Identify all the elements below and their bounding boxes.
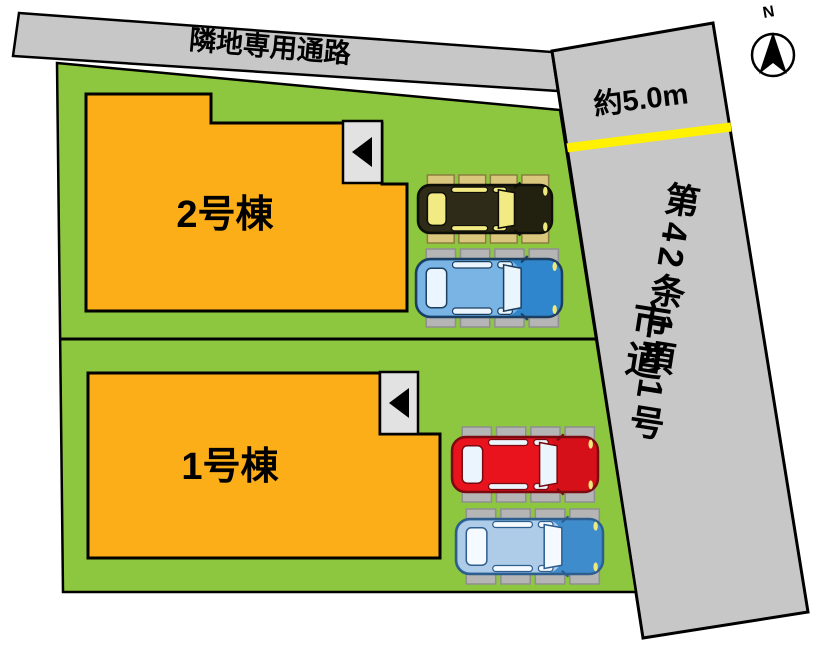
rear-window: [427, 193, 446, 226]
headlight: [543, 187, 547, 196]
headlight: [593, 562, 597, 571]
rear-window: [462, 446, 482, 483]
car-blue-group: [416, 249, 562, 327]
side-window: [452, 226, 488, 231]
side-window: [489, 439, 528, 445]
rear-window: [466, 528, 487, 565]
compass: [752, 32, 794, 76]
windshield: [498, 190, 514, 228]
building-2-entrance-marker: [343, 121, 382, 183]
car-red-group: [452, 427, 598, 502]
side-window: [489, 483, 528, 489]
windshield: [544, 525, 562, 569]
car-black-group: [418, 175, 552, 243]
headlight: [589, 480, 593, 489]
building-1-label: 1号棟: [100, 448, 360, 488]
side-window: [493, 521, 533, 527]
headlight: [553, 305, 557, 314]
side-window: [453, 262, 492, 268]
building-1-entrance-marker: [380, 372, 418, 434]
rear-window: [426, 268, 446, 307]
building-2-label: 2号棟: [95, 196, 355, 236]
headlight: [543, 222, 547, 231]
headlight: [593, 522, 597, 531]
side-window: [493, 565, 533, 571]
car-lightblue-group: [456, 509, 603, 584]
windshield: [540, 443, 558, 487]
site-plan-canvas: 隣地専用通路 約5.0m 第42条1項1号 市道 2号棟 1号棟 N: [0, 0, 818, 646]
side-window: [453, 308, 492, 314]
windshield: [504, 265, 522, 311]
headlight: [589, 440, 593, 449]
headlight: [553, 262, 557, 271]
side-window: [452, 187, 488, 192]
